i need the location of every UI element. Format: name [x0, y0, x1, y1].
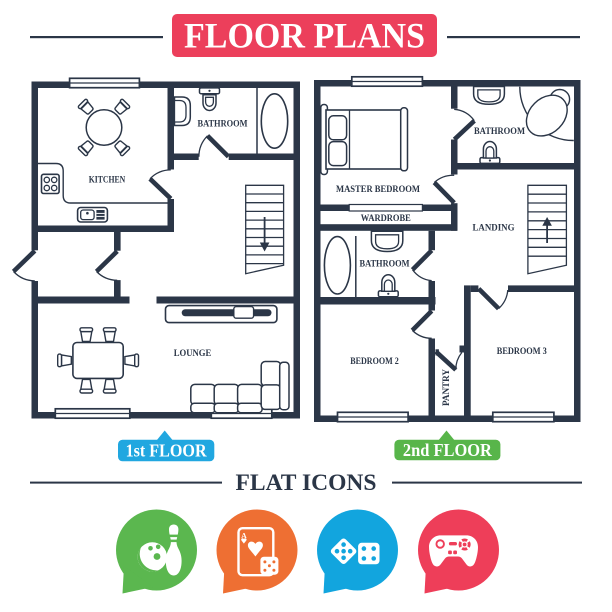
svg-text:BATHROOM: BATHROOM [198, 118, 248, 128]
svg-text:WARDROBE: WARDROBE [361, 213, 411, 223]
svg-text:MASTER BEDROOM: MASTER BEDROOM [336, 184, 420, 194]
svg-text:LANDING: LANDING [473, 223, 515, 233]
svg-text:FLOOR PLANS: FLOOR PLANS [184, 16, 425, 56]
svg-text:BEDROOM 2: BEDROOM 2 [350, 356, 399, 366]
svg-text:2nd FLOOR: 2nd FLOOR [403, 440, 492, 460]
svg-text:FLAT ICONS: FLAT ICONS [236, 470, 377, 495]
svg-text:BATHROOM: BATHROOM [360, 259, 410, 269]
svg-text:LOUNGE: LOUNGE [174, 348, 212, 358]
svg-text:BEDROOM 3: BEDROOM 3 [497, 346, 547, 356]
svg-text:KITCHEN: KITCHEN [89, 174, 126, 184]
svg-text:PANTRY: PANTRY [441, 369, 451, 406]
svg-text:1st FLOOR: 1st FLOOR [126, 441, 207, 461]
svg-text:BATHROOM: BATHROOM [474, 126, 525, 136]
